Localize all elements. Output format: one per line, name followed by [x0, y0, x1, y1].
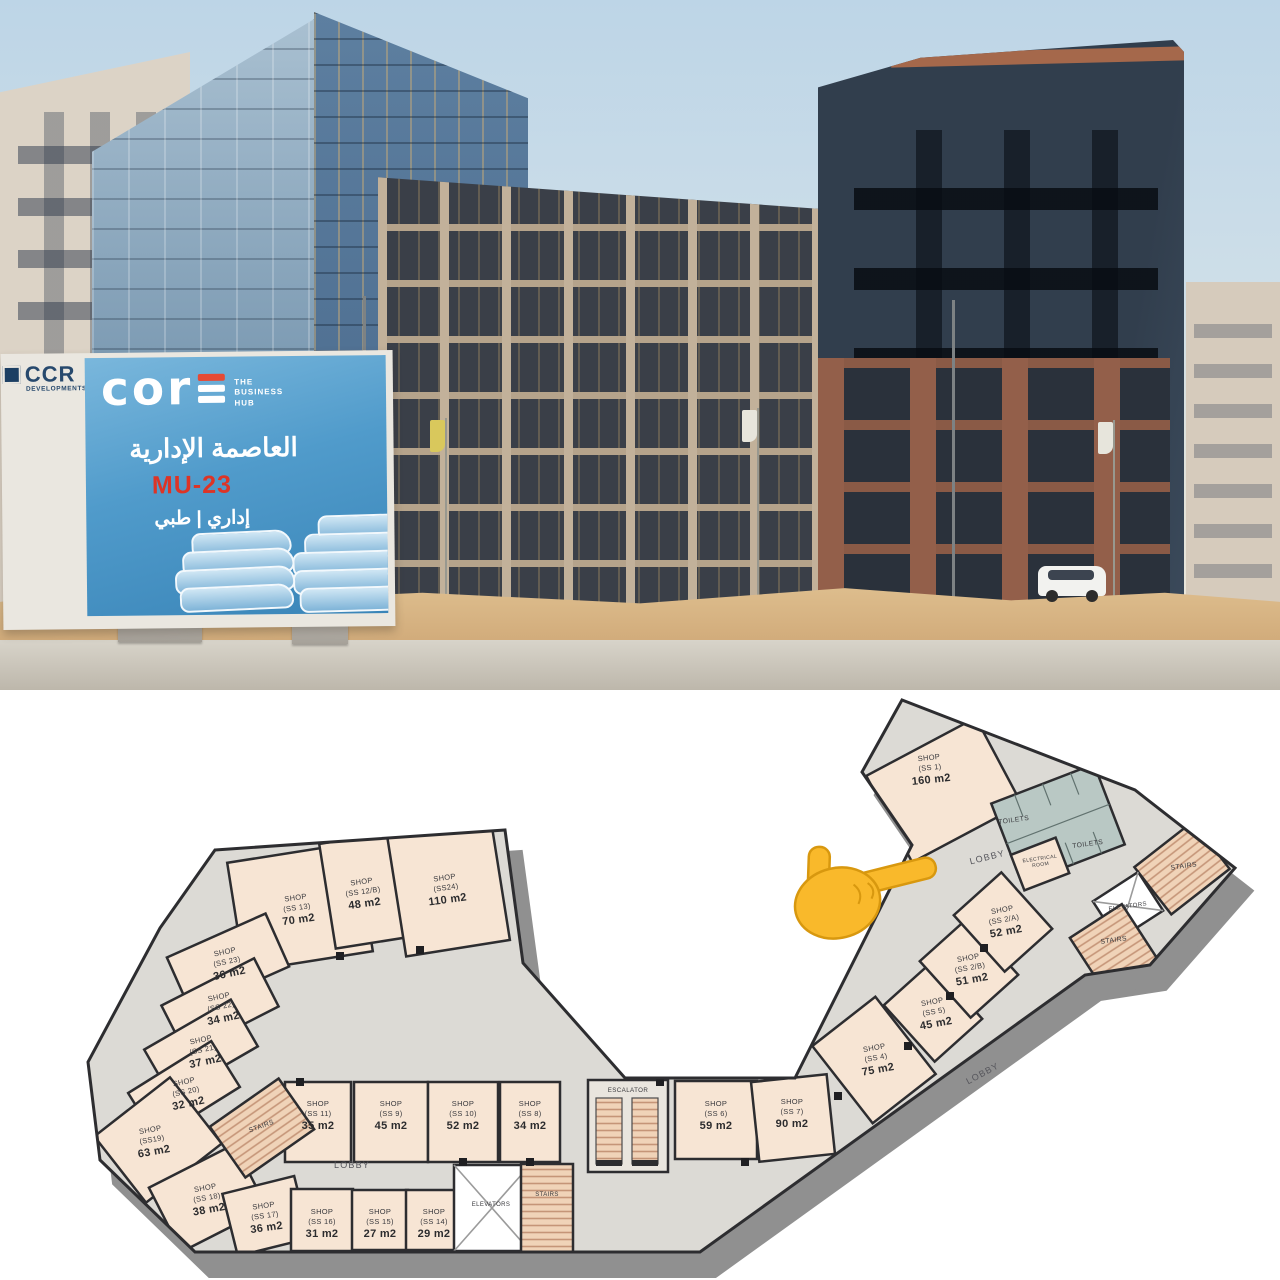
white-flag: [742, 410, 757, 442]
stairs-bottom-label: STAIRS: [535, 1192, 559, 1198]
lobby-label-bottom: LOBBY: [334, 1160, 370, 1170]
building-far-right: [1186, 282, 1280, 628]
stairs-bottom: [521, 1164, 573, 1252]
elevators-bottom: [454, 1165, 530, 1251]
developer-subtitle: DEVELOPMENTS: [26, 385, 87, 393]
real-estate-ad: CCR DEVELOPMENTS cor THE BUSINESS HUB ال…: [0, 0, 1280, 1280]
core-logo-text: cor: [101, 369, 194, 410]
billboard: cor THE BUSINESS HUB العاصمة الإدارية MU…: [85, 355, 389, 616]
flagpole: [1113, 420, 1115, 598]
floor-plan: SHOP(SS 1)160 m2 SHOP(SS 2/A)52 m2 SHOP(…: [0, 690, 1280, 1280]
billboard-wall: CCR DEVELOPMENTS cor THE BUSINESS HUB ال…: [1, 350, 396, 630]
svg-text:STAIRS: STAIRS: [535, 1192, 559, 1198]
svg-text:ESCALATOR: ESCALATOR: [608, 1087, 649, 1094]
yellow-flag: [430, 420, 445, 452]
flagpole: [757, 408, 759, 598]
billboard-arabic-subtitle: إداري | طبي: [120, 506, 284, 531]
escalator-label: ESCALATOR: [608, 1087, 649, 1094]
white-flag: [1098, 422, 1113, 454]
svg-text:LOBBY: LOBBY: [334, 1160, 370, 1170]
construction-site-photo: CCR DEVELOPMENTS cor THE BUSINESS HUB ال…: [0, 0, 1280, 690]
car-windows: [1048, 570, 1094, 580]
developer-name: CCR: [25, 361, 76, 388]
svg-text:ELEVATORS: ELEVATORS: [472, 1202, 511, 1208]
flagpole: [445, 418, 447, 606]
street-light-pole: [952, 300, 955, 602]
core-logo-bars-icon: [198, 369, 225, 407]
brick-frame-grid: [818, 358, 1170, 628]
building-render-left: [173, 536, 296, 613]
core-logo: cor THE BUSINESS HUB: [101, 368, 293, 410]
car-wheel: [1086, 590, 1098, 602]
white-car: [1038, 566, 1106, 596]
project-code: MU-23: [152, 471, 232, 501]
road: [0, 640, 1280, 690]
window-grid: [1194, 298, 1272, 618]
building-render-right: [292, 519, 389, 613]
elevators-bottom-label: ELEVATORS: [472, 1202, 511, 1208]
car-wheel: [1046, 590, 1058, 602]
billboard-arabic-title: العاصمة الإدارية: [95, 432, 331, 465]
ccr-logo-icon: [3, 366, 21, 384]
core-tagline: THE BUSINESS HUB: [234, 368, 292, 409]
building-brick-frame-lower-right: [818, 358, 1170, 628]
